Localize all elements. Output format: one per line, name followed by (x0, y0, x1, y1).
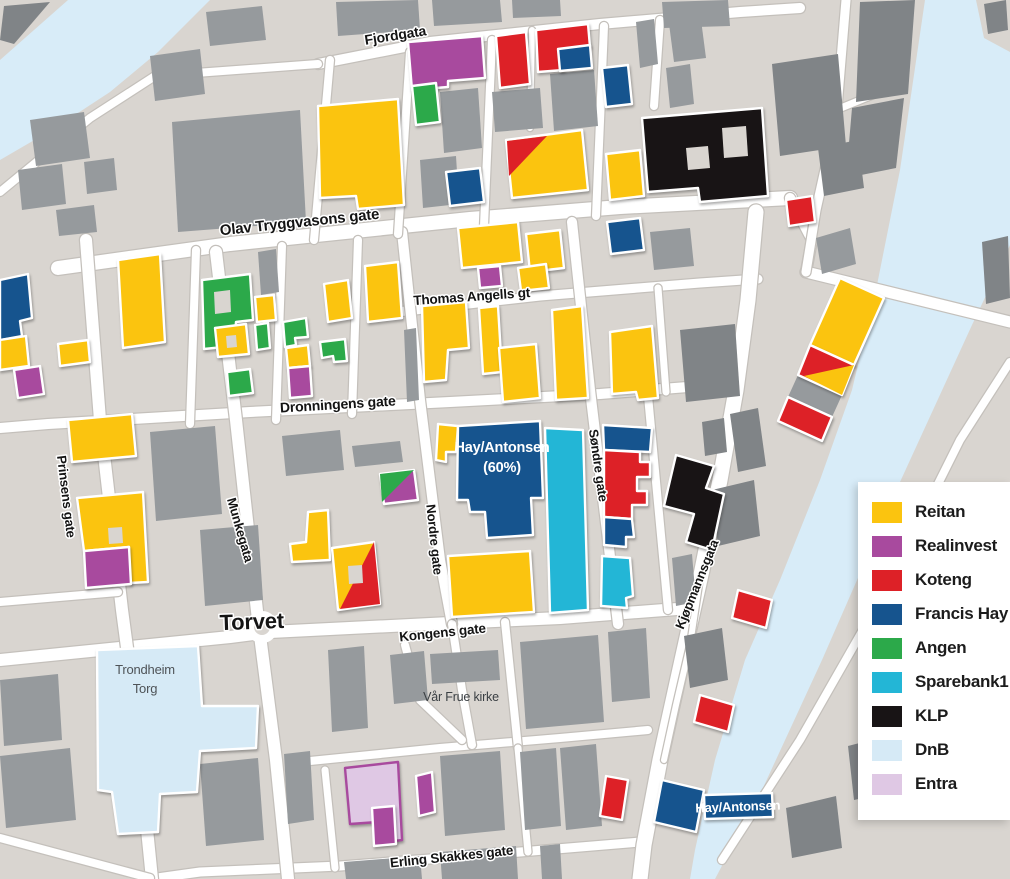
legend-row-angen: Angen (872, 631, 1010, 665)
building-sparebank1 (545, 428, 588, 613)
building-reitan (365, 262, 402, 322)
legend-label: Entra (915, 774, 957, 794)
building-reitan (318, 99, 404, 209)
gray-building (172, 110, 306, 232)
legend-row-realinvest: Realinvest (872, 529, 1010, 563)
legend-swatch-realinvest (872, 536, 902, 557)
gray-building (0, 674, 62, 746)
gray-building (258, 249, 279, 295)
gray-building (206, 6, 266, 46)
building-realinvest (372, 806, 396, 846)
legend: Reitan Realinvest Koteng Francis Hay Ang… (858, 482, 1010, 820)
gray-building (818, 140, 864, 196)
legend-row-sparebank1: Sparebank1 (872, 665, 1010, 699)
gray-building (430, 650, 500, 684)
legend-row-francis-hay: Francis Hay (872, 597, 1010, 631)
gray-building (18, 164, 66, 210)
legend-label: Koteng (915, 570, 972, 590)
legend-label: KLP (915, 706, 948, 726)
courtyard (686, 146, 710, 170)
legend-row-entra: Entra (872, 767, 1010, 801)
trondheim-ownership-map: FjordgataOlav Tryggvasons gateThomas Ang… (0, 0, 1010, 879)
gray-building (200, 758, 264, 846)
legend-row-reitan: Reitan (872, 495, 1010, 529)
gray-building (328, 646, 368, 732)
building-reitan (606, 150, 644, 200)
gray-building (684, 628, 728, 688)
building-reitan (255, 295, 276, 322)
gray-building (432, 0, 502, 26)
building-reitan (448, 551, 534, 617)
building-reitan (552, 306, 588, 400)
building-koteng (496, 32, 530, 88)
gray-building (150, 426, 222, 521)
building-reitan (479, 306, 502, 374)
gray-building (856, 0, 915, 102)
legend-row-klp: KLP (872, 699, 1010, 733)
gray-building (200, 525, 263, 606)
building-realinvest (84, 547, 131, 588)
legend-row-koteng: Koteng (872, 563, 1010, 597)
gray-building (666, 64, 694, 108)
building-francishay (603, 425, 652, 452)
gray-building (284, 751, 314, 824)
gray-building (492, 88, 543, 132)
building-reitan (499, 344, 540, 402)
gray-building (702, 418, 727, 456)
gray-building (650, 228, 694, 270)
gray-building (982, 236, 1010, 304)
building-koteng (600, 776, 628, 820)
legend-label: DnB (915, 740, 949, 760)
building-reitan (610, 326, 658, 400)
legend-swatch-angen (872, 638, 902, 659)
gray-building (520, 635, 604, 729)
building-reitan (458, 222, 522, 268)
gray-building (668, 12, 706, 62)
courtyard (722, 126, 748, 158)
gray-building (150, 49, 205, 101)
courtyard (108, 527, 123, 544)
legend-swatch-sparebank1 (872, 672, 902, 693)
map-label-trondheim-torg-line2: Torg (133, 681, 158, 696)
building-realinvest (288, 366, 312, 398)
legend-row-dnb: DnB (872, 733, 1010, 767)
building-realinvest (416, 772, 435, 816)
building-reitan (68, 414, 136, 462)
building-koteng (786, 196, 815, 226)
map-label-hay-antonsen-60-line1: Hay/Antonsen (454, 440, 549, 456)
building-realinvest (478, 266, 502, 288)
legend-label: Realinvest (915, 536, 997, 556)
legend-swatch-entra (872, 774, 902, 795)
legend-swatch-koteng (872, 570, 902, 591)
gray-building (680, 324, 740, 402)
legend-label: Sparebank1 (915, 672, 1008, 692)
gray-building (512, 0, 561, 18)
building-reitan (0, 336, 29, 370)
gray-building (282, 430, 344, 476)
gray-building (984, 0, 1008, 34)
building-angen (412, 83, 440, 125)
gray-building (56, 205, 97, 236)
building-francishay (446, 168, 484, 206)
building-reitan (324, 280, 352, 322)
courtyard (348, 565, 363, 584)
building-reitan (118, 254, 165, 348)
legend-label: Angen (915, 638, 966, 658)
gray-building (520, 748, 561, 830)
gray-building (772, 54, 846, 156)
courtyard (214, 290, 231, 314)
gray-building (440, 88, 482, 153)
building-francishay (602, 65, 632, 107)
gray-building (0, 748, 76, 828)
legend-swatch-reitan (872, 502, 902, 523)
gray-building (30, 112, 90, 166)
building-angen (227, 369, 253, 396)
map-label-trondheim-torg-line1: Trondheim (115, 662, 175, 677)
building-realinvest (14, 366, 44, 398)
legend-swatch-dnb (872, 740, 902, 761)
building-reitan (286, 345, 310, 368)
building-reitan (58, 340, 90, 366)
gray-building (540, 844, 562, 879)
map-label-var-frue-kirke: Vår Frue kirke (423, 690, 499, 704)
building-angen (255, 323, 270, 350)
gray-building (560, 744, 602, 830)
legend-swatch-francis-hay (872, 604, 902, 625)
legend-swatch-klp (872, 706, 902, 727)
map-label-hay-antonsen-60-line2: (60%) (483, 460, 521, 476)
gray-building (550, 70, 598, 131)
building-angen (320, 339, 347, 362)
gray-building (84, 158, 117, 194)
map-label-hay-antonsen-south: Hay/Antonsen (695, 798, 781, 816)
building-francishay (558, 45, 592, 71)
gray-building (608, 628, 650, 702)
map-label-torvet: Torvet (219, 608, 285, 635)
gray-building (440, 751, 505, 836)
legend-label: Reitan (915, 502, 965, 522)
building-francishay (607, 218, 644, 254)
legend-label: Francis Hay (915, 604, 1008, 624)
courtyard (226, 335, 237, 348)
